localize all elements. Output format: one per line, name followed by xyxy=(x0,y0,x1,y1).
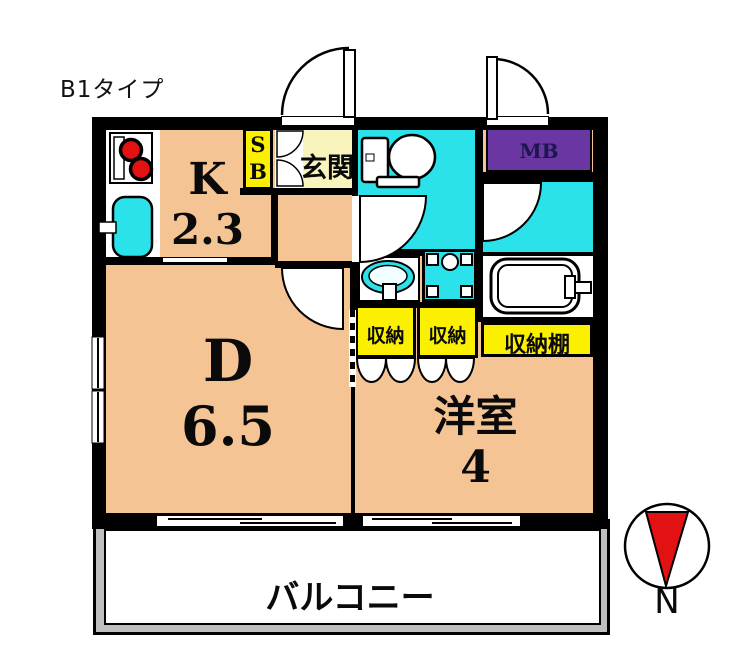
kitchen-size: 2.3 xyxy=(145,206,270,254)
wall-tub-shelf xyxy=(480,317,593,322)
wall-dining-western-lower xyxy=(351,387,355,513)
western-room-label: 洋室 4 xyxy=(388,392,563,495)
entrance-door-threshold xyxy=(281,116,355,126)
storage-left-label: 収納 xyxy=(355,321,416,348)
compass-icon xyxy=(625,504,709,588)
opening-kitchen-dining xyxy=(163,258,227,262)
western-room-size: 4 xyxy=(388,442,563,495)
shoebox-label: S B xyxy=(243,131,273,186)
shoebox-s: S xyxy=(243,131,273,158)
dining-letter: D xyxy=(158,328,298,395)
bathroom-area xyxy=(483,182,593,253)
plan-type-title: B1タイプ xyxy=(60,70,164,104)
wall-toilet-bath xyxy=(475,129,483,322)
storage-right-label: 収納 xyxy=(417,321,478,348)
storage-shelf-label: 収納棚 xyxy=(481,327,593,359)
shoebox-b: B xyxy=(243,158,273,185)
wall-storage-top xyxy=(352,302,483,308)
wall-bottom xyxy=(92,513,608,529)
wall-left xyxy=(92,117,106,529)
floorplan-page: B1タイプ xyxy=(0,0,756,649)
toilet-room xyxy=(358,129,477,250)
wall-meterbox-bath xyxy=(483,172,593,182)
meterbox-door-icon xyxy=(487,57,548,119)
doorway-hall-toilet xyxy=(352,196,359,262)
wall-right xyxy=(593,117,608,529)
balcony-label: バルコニー xyxy=(200,570,500,619)
entrance-door-icon xyxy=(282,48,355,117)
western-room-name: 洋室 xyxy=(388,392,563,442)
wall-dining-western-upper xyxy=(350,262,357,310)
entrance-label: 玄関 xyxy=(299,146,355,185)
washing-machine-pan xyxy=(422,249,477,302)
compass-north-label: N xyxy=(648,582,686,622)
wall-kitchen-hall xyxy=(271,188,278,265)
bathtub-area xyxy=(483,256,593,317)
washbasin-area xyxy=(358,256,420,302)
wall-bath-tub-line xyxy=(483,252,593,256)
dining-size: 6.5 xyxy=(158,395,298,457)
wall-hall-dining xyxy=(275,261,352,268)
meterbox-door-threshold xyxy=(486,116,549,126)
dining-label: D 6.5 xyxy=(158,328,298,457)
wall-toilet-washbasin xyxy=(352,249,422,256)
meterbox-label: MB xyxy=(486,139,592,163)
